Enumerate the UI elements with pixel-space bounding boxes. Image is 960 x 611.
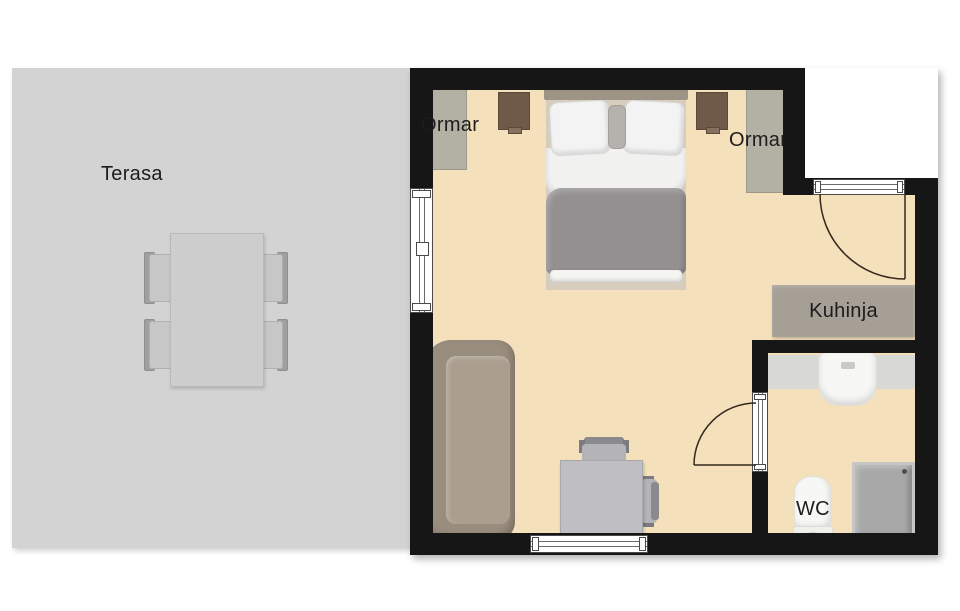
- chair-back: [651, 482, 659, 520]
- double-bed: [544, 88, 688, 290]
- door-sill-cap: [815, 181, 821, 193]
- kitchen-counter: Kuhinja: [772, 285, 915, 337]
- shower-drain: [902, 469, 907, 474]
- window-end-cap: [639, 537, 646, 551]
- shower: [852, 462, 915, 542]
- nightstand-knob: [508, 127, 522, 134]
- door-sill-cap: [897, 181, 903, 193]
- nightstand-right: [696, 92, 728, 130]
- nightstand-knob: [706, 127, 720, 134]
- kitchen-label: Kuhinja: [809, 300, 878, 323]
- wardrobe-left-label: Ormar: [421, 114, 479, 137]
- wall-bathroom-horizontal: [752, 340, 915, 353]
- window-end-cap: [412, 303, 431, 311]
- entrance-door-sill: [813, 179, 905, 195]
- sofa: [425, 340, 515, 540]
- faucet: [841, 362, 855, 369]
- window-end-cap: [412, 190, 431, 198]
- sofa-cushion: [446, 356, 510, 524]
- wall-top: [410, 68, 805, 90]
- bathroom-door-jamb: [752, 392, 768, 472]
- bed-pillow-left: [549, 99, 612, 156]
- wall-right: [915, 178, 938, 555]
- bed-duvet: [546, 188, 686, 274]
- terrace-table: [170, 233, 264, 387]
- wardrobe-right-label: Ormar: [729, 129, 787, 152]
- wc-label: WC: [796, 498, 830, 521]
- window-handle: [416, 242, 429, 256]
- window-end-cap: [532, 537, 539, 551]
- door-jamb-cap: [754, 394, 766, 400]
- door-jamb-cap: [754, 464, 766, 470]
- bed-mattress-edge: [550, 270, 682, 282]
- bed-pillow-right: [623, 99, 686, 156]
- window-left-wall: [410, 188, 433, 313]
- sink: [818, 352, 877, 406]
- desk: [560, 460, 643, 540]
- bed-pillow-center: [608, 105, 626, 149]
- window-bottom-wall: [530, 535, 648, 553]
- terrace-area: Terasa: [12, 68, 412, 548]
- nightstand-left: [498, 92, 530, 130]
- floor-plan: Terasa: [0, 0, 960, 611]
- terrace-label: Terasa: [101, 163, 163, 186]
- wall-bottom: [410, 533, 938, 555]
